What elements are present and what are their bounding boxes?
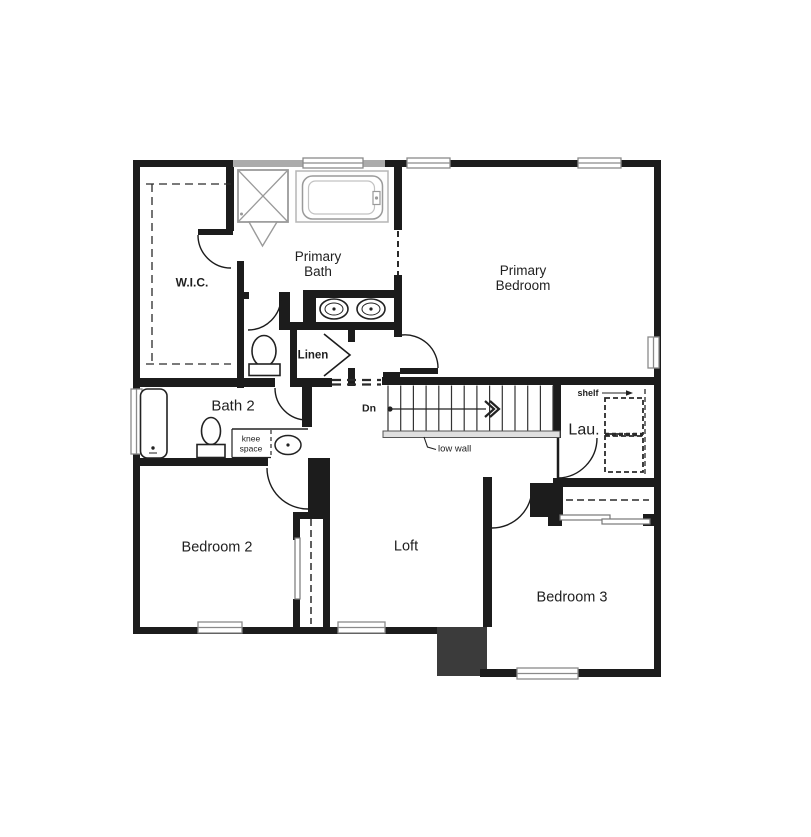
knee-space-label: knee space (240, 435, 263, 454)
room-label-bedroom2: Bedroom 2 (182, 541, 253, 556)
stairs (383, 386, 560, 450)
room-label-laundry: Lau. (568, 423, 599, 438)
room-label-primary-bath: Primary Bath (295, 249, 342, 279)
floor-plan-page: W.I.C. Primary Bath Primary Bedroom Bath… (0, 0, 811, 837)
bedroom3-door-arc (492, 488, 532, 528)
window-bath-top (303, 158, 363, 168)
window-primary-bedroom-2 (578, 158, 621, 168)
primary-bedroom-door-arc (402, 335, 438, 368)
room-label-wic: W.I.C. (176, 276, 209, 291)
shower-door (249, 222, 277, 246)
window-primary-bedroom-1 (407, 158, 450, 168)
hall-ceiling-break (332, 380, 381, 385)
bedroom3-closet-door-2 (602, 519, 650, 524)
linen-label: Linen (298, 349, 329, 364)
laundry-door-arc (558, 438, 597, 478)
primary-tub (296, 171, 388, 222)
washer-dashed-box (605, 398, 643, 434)
water-closet-door-arc (248, 297, 281, 330)
shelf-label: shelf (577, 388, 598, 398)
shower (238, 170, 288, 246)
stair-direction-arrow (485, 401, 499, 417)
room-label-bath2: Bath 2 (211, 399, 254, 414)
bedroom2-closet-door (295, 538, 300, 599)
room-label-bedroom3: Bedroom 3 (537, 591, 608, 606)
chase-block (437, 627, 487, 676)
room-label-loft: Loft (394, 540, 418, 555)
low-wall-leader (424, 437, 436, 450)
bath2-tub (141, 389, 168, 458)
wic-door-arc (198, 235, 231, 268)
primary-vanity-sinks (320, 299, 385, 319)
bedroom2-door-arc (267, 468, 308, 509)
floor-plan-canvas (0, 0, 811, 837)
room-label-primary-bedroom: Primary Bedroom (496, 263, 551, 293)
dryer-dashed-box (605, 436, 643, 472)
window-bedroom2 (198, 622, 242, 633)
shelf-arrow (602, 390, 633, 396)
window-loft (338, 622, 385, 633)
wic-shelf-dashes (146, 184, 231, 365)
window-bedroom3 (517, 668, 578, 679)
window-primary-bedroom-right (648, 337, 659, 368)
closet-doors (295, 515, 650, 599)
stairs-dn-label: Dn (362, 404, 376, 415)
fixtures (141, 170, 389, 458)
primary-toilet (249, 336, 280, 376)
low-wall-label: low wall (438, 442, 471, 457)
bath2-toilet (197, 418, 225, 458)
low-wall (383, 431, 560, 438)
